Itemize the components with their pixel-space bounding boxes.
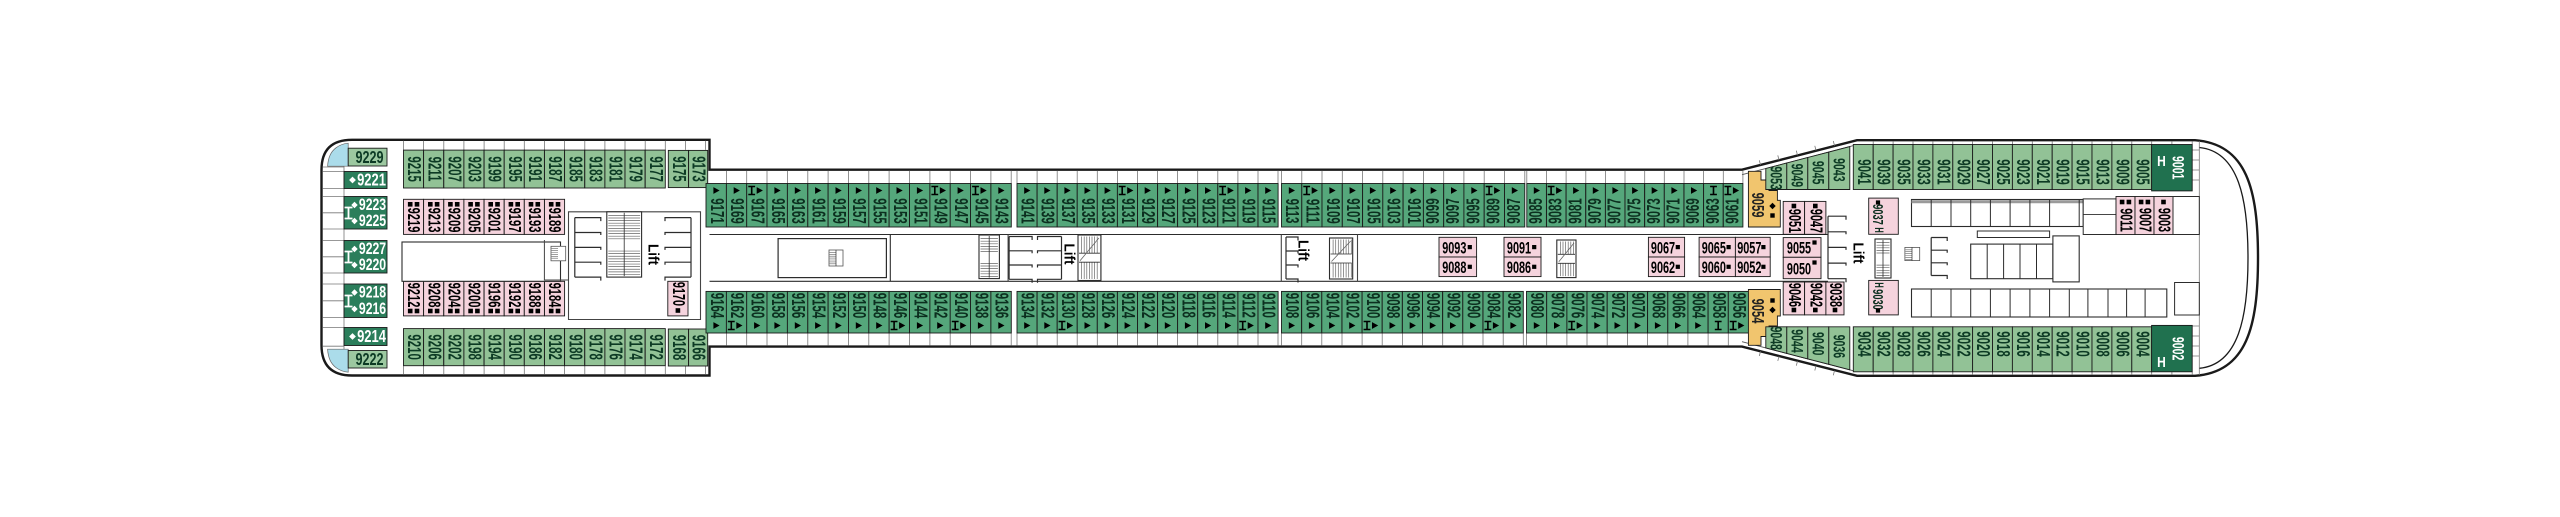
svg-text:9001: 9001 [2169, 156, 2188, 180]
svg-text:9168: 9168 [668, 335, 688, 361]
svg-text:9131: 9131 [1117, 198, 1137, 224]
svg-text:9206: 9206 [423, 334, 443, 360]
svg-text:9151: 9151 [909, 198, 929, 224]
svg-text:9095: 9095 [1464, 198, 1484, 224]
svg-text:9211: 9211 [423, 157, 443, 182]
svg-text:9152: 9152 [828, 293, 848, 319]
svg-text:9138: 9138 [970, 293, 990, 319]
svg-text:9197: 9197 [504, 208, 524, 233]
svg-text:9083: 9083 [1546, 198, 1566, 224]
svg-text:9051: 9051 [1784, 209, 1803, 233]
svg-text:9177: 9177 [645, 156, 665, 182]
svg-text:9222: 9222 [355, 350, 383, 370]
svg-text:9041: 9041 [1853, 159, 1873, 185]
svg-text:9033: 9033 [1913, 159, 1933, 185]
svg-text:9085: 9085 [1526, 198, 1546, 224]
svg-text:9121: 9121 [1218, 198, 1238, 224]
svg-text:9084: 9084 [1483, 293, 1503, 319]
svg-text:9078: 9078 [1547, 293, 1567, 319]
svg-text:9164: 9164 [706, 293, 726, 319]
svg-text:9087: 9087 [1504, 198, 1524, 224]
svg-text:9068: 9068 [1647, 293, 1667, 319]
svg-text:9201: 9201 [484, 208, 504, 233]
svg-text:9025: 9025 [1992, 159, 2012, 185]
svg-text:9069: 9069 [1684, 198, 1704, 224]
svg-text:H: H [2157, 153, 2166, 170]
svg-text:9061: 9061 [1723, 198, 1743, 224]
svg-text:9186: 9186 [524, 334, 544, 360]
svg-text:9077: 9077 [1605, 198, 1625, 224]
svg-text:9195: 9195 [504, 156, 524, 182]
svg-text:9079: 9079 [1585, 198, 1605, 224]
svg-text:9022: 9022 [1952, 331, 1972, 357]
svg-text:9175: 9175 [668, 156, 688, 182]
svg-text:9145: 9145 [970, 198, 990, 224]
svg-text:9054: 9054 [1747, 299, 1767, 324]
svg-text:9072: 9072 [1607, 293, 1627, 319]
svg-text:9032: 9032 [1873, 331, 1893, 357]
svg-text:9103: 9103 [1383, 198, 1403, 224]
svg-text:9090: 9090 [1463, 293, 1483, 319]
svg-text:9115: 9115 [1258, 199, 1278, 224]
svg-text:9219: 9219 [403, 208, 423, 233]
svg-text:9011: 9011 [2116, 208, 2135, 232]
svg-text:9002: 9002 [2169, 337, 2188, 361]
svg-text:9194: 9194 [484, 334, 504, 360]
svg-text:9016: 9016 [2012, 331, 2032, 357]
svg-text:9010: 9010 [2072, 331, 2092, 357]
svg-text:9202: 9202 [444, 334, 464, 360]
svg-text:9003: 9003 [2154, 208, 2173, 232]
svg-text:9023: 9023 [2012, 159, 2032, 185]
svg-text:9120: 9120 [1157, 293, 1177, 319]
svg-text:9052: 9052 [1737, 258, 1761, 277]
svg-text:9200: 9200 [464, 283, 484, 308]
svg-text:9021: 9021 [2032, 159, 2052, 185]
svg-text:9063: 9063 [1703, 198, 1723, 224]
svg-text:9225: 9225 [359, 212, 386, 230]
svg-text:9196: 9196 [484, 283, 504, 308]
svg-text:9037: 9037 [1870, 204, 1887, 225]
svg-text:9101: 9101 [1403, 198, 1423, 224]
svg-text:9004: 9004 [2131, 331, 2151, 357]
svg-text:9100: 9100 [1362, 293, 1382, 319]
svg-text:9042: 9042 [1806, 283, 1825, 307]
svg-text:9059: 9059 [1747, 193, 1767, 218]
svg-text:9024: 9024 [1933, 331, 1953, 357]
svg-text:9082: 9082 [1503, 293, 1523, 319]
svg-text:Lift: Lift [1849, 243, 1866, 264]
svg-text:9156: 9156 [787, 293, 807, 319]
svg-text:9181: 9181 [605, 156, 625, 182]
svg-text:9185: 9185 [564, 156, 584, 182]
svg-text:9026: 9026 [1913, 331, 1933, 357]
svg-text:9210: 9210 [403, 334, 423, 360]
svg-text:9189: 9189 [544, 208, 564, 233]
svg-text:9043: 9043 [1830, 158, 1849, 182]
svg-text:9091: 9091 [1507, 238, 1531, 257]
svg-text:9166: 9166 [688, 335, 708, 361]
svg-text:9154: 9154 [808, 293, 828, 319]
svg-text:9130: 9130 [1057, 293, 1077, 319]
svg-text:9093: 9093 [1442, 238, 1466, 257]
svg-text:9086: 9086 [1507, 258, 1531, 277]
svg-text:9158: 9158 [767, 293, 787, 319]
svg-text:9116: 9116 [1198, 293, 1218, 318]
svg-text:9020: 9020 [1972, 331, 1992, 357]
svg-text:9204: 9204 [444, 283, 464, 308]
svg-text:9179: 9179 [625, 156, 645, 182]
svg-text:9008: 9008 [2092, 331, 2112, 357]
svg-text:9067: 9067 [1651, 238, 1675, 257]
svg-text:Lift: Lift [644, 244, 661, 265]
svg-text:9080: 9080 [1526, 293, 1546, 319]
svg-text:9058: 9058 [1708, 293, 1728, 319]
svg-text:9064: 9064 [1688, 293, 1708, 319]
svg-text:9050: 9050 [1787, 259, 1811, 278]
svg-text:9114: 9114 [1218, 293, 1238, 318]
svg-text:9031: 9031 [1933, 159, 1953, 185]
svg-text:9112: 9112 [1238, 293, 1258, 318]
svg-text:9055: 9055 [1787, 238, 1811, 257]
svg-text:9097: 9097 [1444, 198, 1464, 224]
svg-text:9229: 9229 [355, 148, 383, 168]
svg-text:9027: 9027 [1972, 159, 1992, 185]
svg-text:9192: 9192 [504, 283, 524, 308]
svg-text:9096: 9096 [1402, 293, 1422, 319]
svg-text:9038: 9038 [1825, 283, 1844, 307]
svg-text:9178: 9178 [585, 334, 605, 360]
svg-text:9135: 9135 [1077, 198, 1097, 224]
svg-text:9013: 9013 [2092, 159, 2112, 185]
svg-text:9028: 9028 [1893, 331, 1913, 357]
svg-text:9127: 9127 [1157, 198, 1177, 224]
svg-text:9110: 9110 [1258, 293, 1278, 318]
svg-text:9142: 9142 [930, 293, 950, 319]
svg-text:9157: 9157 [848, 198, 868, 224]
svg-text:9076: 9076 [1567, 293, 1587, 319]
svg-text:9207: 9207 [444, 156, 464, 182]
svg-text:9125: 9125 [1177, 198, 1197, 224]
svg-text:9111: 9111 [1302, 199, 1322, 224]
svg-text:9056: 9056 [1728, 293, 1748, 319]
svg-text:9118: 9118 [1177, 293, 1197, 318]
svg-text:9147: 9147 [950, 198, 970, 224]
svg-text:9146: 9146 [889, 293, 909, 319]
svg-text:9107: 9107 [1342, 198, 1362, 224]
svg-text:9047: 9047 [1806, 209, 1825, 233]
svg-text:9015: 9015 [2072, 159, 2092, 185]
svg-text:9094: 9094 [1422, 293, 1442, 319]
svg-text:9105: 9105 [1362, 198, 1382, 224]
svg-text:9040: 9040 [1809, 332, 1828, 356]
svg-text:9215: 9215 [403, 156, 423, 182]
svg-text:9190: 9190 [504, 334, 524, 360]
svg-text:9165: 9165 [767, 198, 787, 224]
svg-text:9199: 9199 [484, 156, 504, 182]
svg-text:9119: 9119 [1238, 199, 1258, 224]
svg-text:9070: 9070 [1627, 293, 1647, 319]
svg-text:9140: 9140 [950, 293, 970, 319]
svg-text:9144: 9144 [909, 293, 929, 319]
svg-text:9009: 9009 [2112, 159, 2132, 185]
svg-text:9212: 9212 [403, 283, 423, 308]
svg-text:9213: 9213 [423, 208, 443, 233]
svg-text:9034: 9034 [1853, 331, 1873, 357]
svg-text:9171: 9171 [706, 198, 726, 224]
svg-text:9081: 9081 [1566, 198, 1586, 224]
svg-text:9155: 9155 [869, 198, 889, 224]
svg-text:9036: 9036 [1830, 335, 1849, 359]
svg-text:9006: 9006 [2112, 331, 2132, 357]
svg-text:9053: 9053 [1767, 166, 1786, 190]
svg-text:9046: 9046 [1784, 283, 1803, 307]
svg-text:9187: 9187 [544, 156, 564, 182]
svg-text:9109: 9109 [1322, 198, 1342, 224]
svg-text:Lift: Lift [1294, 240, 1311, 261]
svg-text:9153: 9153 [889, 198, 909, 224]
svg-text:9104: 9104 [1322, 293, 1342, 319]
svg-text:9092: 9092 [1443, 293, 1463, 319]
svg-text:9205: 9205 [464, 208, 484, 233]
svg-text:9163: 9163 [787, 198, 807, 224]
svg-text:9193: 9193 [524, 208, 544, 233]
svg-text:9039: 9039 [1873, 159, 1893, 185]
svg-text:9176: 9176 [605, 334, 625, 360]
svg-text:9060: 9060 [1702, 258, 1726, 277]
svg-text:9089: 9089 [1484, 198, 1504, 224]
svg-text:9044: 9044 [1788, 329, 1807, 353]
svg-text:Lift: Lift [1060, 244, 1077, 265]
svg-text:9071: 9071 [1664, 198, 1684, 224]
svg-text:9128: 9128 [1077, 293, 1097, 319]
svg-text:9180: 9180 [564, 334, 584, 360]
svg-text:9184: 9184 [544, 283, 564, 308]
svg-text:9113: 9113 [1281, 199, 1301, 224]
svg-text:9208: 9208 [423, 283, 443, 308]
svg-text:9148: 9148 [869, 293, 889, 319]
svg-text:9099: 9099 [1423, 198, 1443, 224]
svg-text:9035: 9035 [1893, 159, 1913, 185]
svg-text:9220: 9220 [359, 256, 386, 274]
svg-text:9162: 9162 [726, 293, 746, 319]
svg-text:9030: 9030 [1870, 289, 1887, 310]
svg-text:9173: 9173 [688, 156, 708, 182]
svg-text:9172: 9172 [645, 334, 665, 360]
svg-text:9122: 9122 [1137, 293, 1157, 319]
svg-text:9214: 9214 [357, 327, 386, 347]
svg-text:9012: 9012 [2052, 331, 2072, 357]
svg-text:9198: 9198 [464, 334, 484, 360]
svg-text:9134: 9134 [1017, 293, 1037, 319]
svg-text:H: H [1871, 227, 1884, 232]
svg-text:H: H [2157, 354, 2166, 371]
svg-text:9191: 9191 [524, 156, 544, 182]
svg-text:9062: 9062 [1651, 258, 1675, 277]
svg-text:9106: 9106 [1301, 293, 1321, 319]
svg-text:9188: 9188 [524, 283, 544, 308]
svg-text:9019: 9019 [2052, 159, 2072, 185]
svg-text:9159: 9159 [828, 198, 848, 224]
svg-text:9143: 9143 [991, 198, 1011, 224]
svg-text:9126: 9126 [1097, 293, 1117, 319]
svg-text:9170: 9170 [668, 282, 687, 306]
svg-text:9057: 9057 [1737, 238, 1761, 257]
svg-text:9045: 9045 [1809, 161, 1828, 185]
svg-text:9203: 9203 [464, 156, 484, 182]
svg-text:9018: 9018 [1992, 331, 2012, 357]
svg-text:9139: 9139 [1037, 198, 1057, 224]
svg-text:9073: 9073 [1644, 198, 1664, 224]
svg-text:9014: 9014 [2032, 331, 2052, 357]
svg-text:9066: 9066 [1668, 293, 1688, 319]
svg-text:9098: 9098 [1382, 293, 1402, 319]
svg-text:9088: 9088 [1442, 258, 1466, 277]
svg-text:9136: 9136 [991, 293, 1011, 319]
svg-text:9167: 9167 [747, 198, 767, 224]
svg-text:9124: 9124 [1117, 293, 1137, 319]
svg-text:9221: 9221 [357, 171, 386, 191]
svg-text:9029: 9029 [1952, 159, 1972, 185]
svg-text:9048: 9048 [1767, 326, 1786, 350]
svg-text:9209: 9209 [444, 208, 464, 233]
svg-text:9141: 9141 [1017, 198, 1037, 224]
svg-text:9049: 9049 [1788, 164, 1807, 188]
svg-text:9150: 9150 [848, 293, 868, 319]
svg-text:9132: 9132 [1037, 293, 1057, 319]
svg-text:H: H [1871, 282, 1884, 287]
svg-text:9108: 9108 [1281, 293, 1301, 319]
svg-text:9161: 9161 [808, 198, 828, 224]
svg-text:9129: 9129 [1137, 198, 1157, 224]
svg-text:9174: 9174 [625, 334, 645, 360]
svg-text:9183: 9183 [585, 156, 605, 182]
svg-text:9065: 9065 [1702, 238, 1726, 257]
svg-text:9007: 9007 [2135, 208, 2154, 232]
svg-text:9137: 9137 [1057, 198, 1077, 224]
svg-text:9149: 9149 [930, 198, 950, 224]
svg-text:9182: 9182 [544, 334, 564, 360]
svg-text:9123: 9123 [1198, 198, 1218, 224]
svg-text:9005: 9005 [2131, 159, 2151, 185]
svg-text:9102: 9102 [1342, 293, 1362, 319]
svg-text:9075: 9075 [1625, 198, 1645, 224]
svg-text:9074: 9074 [1587, 293, 1607, 319]
svg-text:9169: 9169 [726, 198, 746, 224]
svg-text:9216: 9216 [359, 300, 386, 318]
svg-text:9133: 9133 [1097, 198, 1117, 224]
svg-text:9160: 9160 [747, 293, 767, 319]
